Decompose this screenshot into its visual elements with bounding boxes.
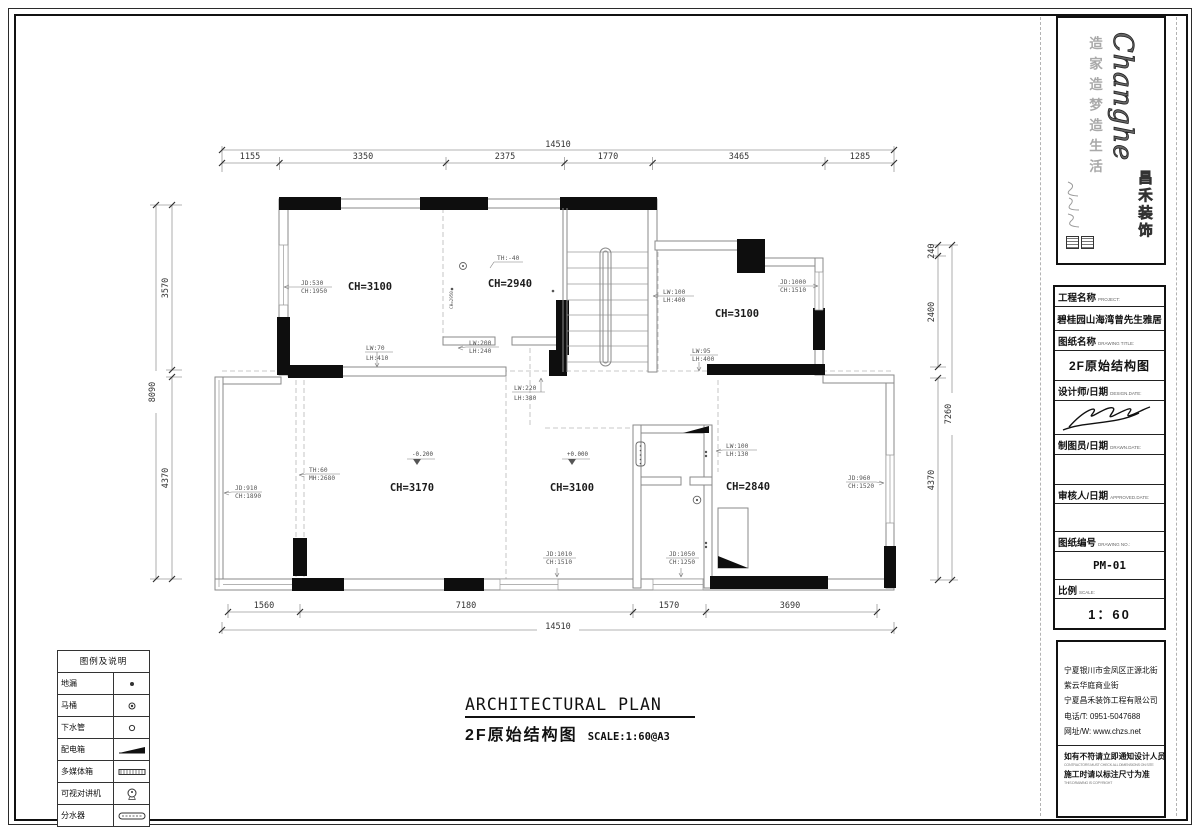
- dim-label: 3465: [729, 152, 749, 162]
- drafter-label-row: 制图员/日期 DRAWN.DATE:: [1055, 435, 1164, 455]
- floor-drain-symbol: [114, 673, 149, 694]
- dim-label: 2400: [927, 302, 937, 322]
- scale-label-row: 比例 SCALE:: [1055, 580, 1164, 600]
- drawing-title-cn: 2F原始结构图: [465, 721, 578, 745]
- svg-text:JD:530: JD:530: [301, 280, 324, 287]
- toilet-symbol: [114, 695, 149, 716]
- dim-label: 3350: [353, 152, 373, 162]
- manifold-symbol: [114, 805, 149, 826]
- company-website: 网址/W: www.chzs.net: [1064, 724, 1158, 739]
- dim-label: 1570: [659, 601, 679, 611]
- dim-overall-top: 14510: [545, 140, 571, 150]
- svg-text:LH:240: LH:240: [469, 348, 492, 355]
- walls: [215, 199, 894, 590]
- svg-text:JD:1010: JD:1010: [546, 551, 572, 558]
- annotation: LW:100 LH:130: [716, 443, 757, 458]
- intercom-symbol: [114, 783, 149, 804]
- legend-row: 马桶: [58, 695, 149, 717]
- dim-overall-right: 7260: [944, 404, 954, 424]
- floor-drain-icon: [451, 288, 454, 291]
- svg-text:LW:95: LW:95: [692, 348, 711, 355]
- svg-text:JD:910: JD:910: [235, 485, 258, 492]
- drafter-value-empty: [1055, 455, 1164, 485]
- dim-label: 3570: [161, 278, 171, 298]
- drain-pipe-symbol: [114, 717, 149, 738]
- dim-label: 4370: [161, 468, 171, 488]
- project-label-row: 工程名称 PROJECT:: [1055, 287, 1164, 307]
- brand-slogan: 造家造梦造生活: [1084, 36, 1104, 180]
- dim-label: 240: [927, 243, 937, 258]
- seal-icon: [1081, 236, 1094, 249]
- legend-row: 地漏: [58, 673, 149, 695]
- note-cn: 施工时请以标注尺寸为准: [1064, 769, 1158, 780]
- approver-label-row: 审核人/日期 APPROVED.DATE:: [1055, 485, 1164, 505]
- dim-label: 1560: [254, 601, 274, 611]
- drawing-name-label-row: 图纸名称 DRAWING TITLE:: [1055, 331, 1164, 351]
- drawing-title-en: ARCHITECTURAL PLAN: [465, 695, 695, 718]
- svg-text:JD:960: JD:960: [848, 475, 871, 482]
- company-phone: 电话/T: 0951-5047688: [1064, 709, 1158, 724]
- logo-block: Changhe 昌禾装饰 造家造梦造生活: [1056, 16, 1166, 265]
- drawing-name-value: 2F原始结构图: [1055, 351, 1164, 381]
- title-block: 工程名称 PROJECT: 碧桂园山海湾曾先生雅居 图纸名称 DRAWING T…: [1053, 285, 1166, 630]
- fixtures: [451, 263, 708, 549]
- dim-label: 2375: [495, 152, 515, 162]
- svg-text:CH:1520: CH:1520: [848, 483, 874, 490]
- svg-text:CH:1510: CH:1510: [780, 287, 806, 294]
- signature-icon: [1055, 401, 1164, 434]
- legend-table: 图例及说明 地漏 马桶 下水管 配电箱 多媒体箱: [57, 650, 150, 827]
- svg-text:CH:1250: CH:1250: [669, 559, 695, 566]
- drawing-no-value: PM-01: [1055, 552, 1164, 580]
- changhe-wordmark: Changhe: [1107, 32, 1138, 161]
- power-box-symbol: [114, 739, 149, 760]
- annotation: JD:530 CH:1950: [284, 280, 332, 295]
- svg-text:JD:1000: JD:1000: [780, 279, 806, 286]
- note-en: THIS DRAWING IS COPYRIGHT: [1064, 781, 1158, 785]
- brand-name-vertical: 昌禾装饰: [1134, 170, 1155, 240]
- windows: [219, 245, 894, 590]
- annotation: LW:70 LH:410: [365, 345, 393, 367]
- dim-label: 4370: [927, 470, 937, 490]
- svg-text:LW:100: LW:100: [663, 289, 686, 296]
- floor-drain-icon: [552, 290, 555, 293]
- room-label: CH=2840: [726, 481, 770, 493]
- legend-row: 分水器: [58, 805, 149, 826]
- svg-text:JD:1050: JD:1050: [669, 551, 695, 558]
- legend-row: 可视对讲机: [58, 783, 149, 805]
- level-markers: -0.200 +0.000: [407, 452, 590, 465]
- annotation: TH:60 MH:2680: [299, 467, 340, 482]
- annotation: TH:-40: [490, 255, 523, 268]
- dim-label: 1285: [850, 152, 870, 162]
- dim-overall-left: 8090: [148, 382, 158, 402]
- drawing-no-label-row: 图纸编号 DRAWING NO.:: [1055, 532, 1164, 552]
- structural-columns: [277, 197, 896, 591]
- room-label: CH=3100: [715, 308, 759, 320]
- divider: [1058, 745, 1164, 746]
- approver-value-empty: [1055, 504, 1164, 532]
- annotation: JD:1050 CH:1250: [666, 551, 699, 577]
- level-value: -0.200: [412, 452, 433, 458]
- dim-label: 3690: [780, 601, 800, 611]
- staircase: [563, 208, 648, 372]
- calligraphy-signature: [1064, 178, 1082, 233]
- company-address-line: 紫云华庭商业街: [1064, 678, 1158, 693]
- annotation: JD:910 CH:1890: [224, 485, 262, 500]
- room-label: CH=3170: [390, 482, 434, 494]
- dim-label: 1155: [240, 152, 260, 162]
- note-en: CONTRACTORS MUST CHECK ALL DIMENSIONS ON…: [1064, 763, 1158, 767]
- svg-text:LH:400: LH:400: [692, 356, 715, 363]
- legend-row: 下水管: [58, 717, 149, 739]
- company-name: 宁夏昌禾装饰工程有限公司: [1064, 693, 1158, 708]
- seal-stamps: [1066, 236, 1094, 249]
- legend-row: 多媒体箱: [58, 761, 149, 783]
- beam-window-annotations: JD:530 CH:1950 TH:-40 LW:70 LH:410 LW:20…: [224, 255, 884, 577]
- seal-icon: [1066, 236, 1079, 249]
- company-info-block: 宁夏银川市金凤区正源北街 紫云华庭商业街 宁夏昌禾装饰工程有限公司 电话/T: …: [1056, 640, 1166, 818]
- scale-value: 1：60: [1055, 599, 1164, 628]
- room-label: CH=2940: [488, 278, 532, 290]
- svg-text:MH:2680: MH:2680: [309, 475, 335, 482]
- note-cn: 如有不符请立即通知设计人员: [1064, 751, 1158, 762]
- company-address-line: 宁夏银川市金凤区正源北街: [1064, 663, 1158, 678]
- svg-text:TH:-40: TH:-40: [497, 255, 520, 262]
- legend-row: 配电箱: [58, 739, 149, 761]
- svg-text:CH:1890: CH:1890: [235, 493, 261, 500]
- annotation: LW:220 LH:380: [512, 378, 545, 402]
- dim-label: 1770: [598, 152, 618, 162]
- svg-text:LH:130: LH:130: [726, 451, 749, 458]
- room-label: CH=3100: [550, 482, 594, 494]
- annotation: JD:1000 CH:1510: [778, 279, 818, 294]
- svg-text:LW:100: LW:100: [726, 443, 749, 450]
- drawing-title: ARCHITECTURAL PLAN 2F原始结构图 SCALE:1:60@A3: [465, 695, 695, 745]
- drawing-scale-note: SCALE:1:60@A3: [588, 731, 670, 743]
- annotation: JD:1010 CH:1510: [543, 551, 576, 577]
- room-label-small: CH=2950: [449, 291, 454, 309]
- designer-label-row: 设计师/日期 DESIGN.DATE:: [1055, 381, 1164, 401]
- drawing-sheet: 1155 3350 2375 1770 3465 1285 14510 1560…: [0, 0, 1200, 833]
- media-box-symbol: [114, 761, 149, 782]
- svg-text:CH:1510: CH:1510: [546, 559, 572, 566]
- project-value: 碧桂园山海湾曾先生雅居: [1055, 307, 1164, 332]
- stair-handrail: [600, 248, 611, 366]
- svg-text:LW:220: LW:220: [514, 385, 537, 392]
- dim-overall-bottom: 14510: [545, 622, 571, 632]
- svg-text:TH:60: TH:60: [309, 467, 328, 474]
- svg-text:LH:410: LH:410: [366, 355, 389, 362]
- legend-title: 图例及说明: [58, 651, 149, 673]
- svg-text:CH:1950: CH:1950: [301, 288, 327, 295]
- svg-text:LW:70: LW:70: [366, 345, 385, 352]
- designer-signature: [1055, 401, 1164, 436]
- annotation: JD:960 CH:1520: [846, 475, 884, 490]
- svg-text:LW:200: LW:200: [469, 340, 492, 347]
- dim-label: 7180: [456, 601, 476, 611]
- svg-text:LH:400: LH:400: [663, 297, 686, 304]
- svg-text:LH:380: LH:380: [514, 395, 537, 402]
- level-value: +0.000: [567, 452, 588, 458]
- annotation: LW:100 LH:400: [653, 289, 694, 304]
- room-label: CH=3100: [348, 281, 392, 293]
